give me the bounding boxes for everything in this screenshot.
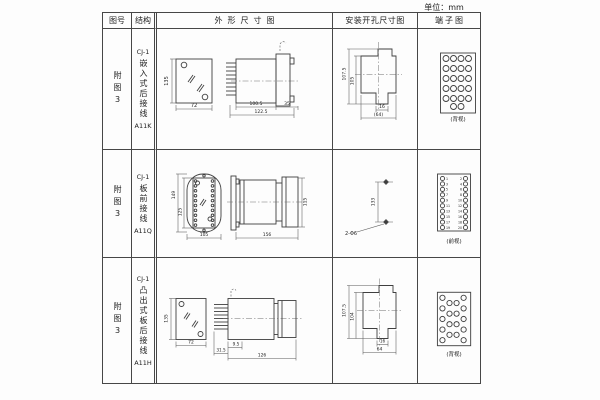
structure-cell-a11h: CJ-1 凸出式板后接线 A11H <box>132 258 157 383</box>
terminal-diagram-a11q: 1357911131517192468101214161820 (前视) <box>418 150 480 257</box>
fig-no-label: 附图3 <box>113 71 121 108</box>
terminal-cell-a11h: (背视) <box>418 258 480 383</box>
dim-flange: 35 <box>284 101 290 107</box>
pins <box>226 63 236 95</box>
dim-depth-total: 122.5 <box>255 109 268 115</box>
terminal-number: 20 <box>458 226 462 230</box>
structure-cell-a11k: CJ-1 嵌入式后接线 A11K <box>132 29 157 150</box>
dim-inner-height: 125 <box>178 208 184 217</box>
dim-notch: 16 <box>380 339 386 344</box>
unit-label-text: 单位：mm <box>424 3 464 12</box>
header-outline: 外形尺寸图 <box>157 13 333 29</box>
dim-cutout-outer: 107.5 <box>342 67 348 80</box>
dim-depth: 156 <box>263 232 272 238</box>
terminal-number: 8 <box>460 193 462 197</box>
dim-inset: 9.5 <box>233 342 240 347</box>
dim-front-width: 105 <box>200 232 209 238</box>
header-fig-no-text: 图号 <box>109 15 125 26</box>
terminal-number: 10 <box>458 199 462 203</box>
terminal-number: 4 <box>460 182 462 186</box>
terminal-number: 11 <box>446 204 450 208</box>
terminal-caption: (背视) <box>450 115 465 123</box>
mounting-holes <box>383 179 389 225</box>
outline-cell-a11k: 135 72 100.5 <box>157 29 333 150</box>
structure-label: 板前接线 <box>139 184 147 224</box>
terminal-cell-a11q: 1357911131517192468101214161820 (前视) <box>418 150 480 258</box>
outline-cell-a11h: 135 72 9.5 <box>157 258 333 383</box>
dim-cutout-inner: 105 <box>350 77 356 86</box>
outline-diagram-a11q: 149 125 105 156 115 <box>157 150 332 257</box>
model-label: CJ-1 <box>137 173 150 181</box>
terminal-number: 6 <box>460 188 462 192</box>
terminal-number: 13 <box>446 210 450 214</box>
outline-diagram-a11h: 135 72 9.5 <box>157 258 332 383</box>
dim-front-width: 72 <box>188 340 194 346</box>
dim-cutout-width: 64 <box>377 347 383 353</box>
mounting-cell-a11k: 107.5 105 16 (64) <box>333 29 418 150</box>
header-structure-text: 结构 <box>135 15 151 26</box>
terminal-number: 1 <box>446 177 448 181</box>
terminal-number: 12 <box>458 204 462 208</box>
terminal-caption: (前视) <box>446 237 461 245</box>
terminal-number: 9 <box>446 199 448 203</box>
dim-pin-depth: 31.5 <box>216 348 226 353</box>
terminal-number: 17 <box>446 220 450 224</box>
header-mounting-text: 安装开孔尺寸图 <box>345 15 405 26</box>
dim-front-height: 135 <box>164 76 170 86</box>
terminal-number: 2 <box>460 177 462 181</box>
structure-label: 凸出式板后接线 <box>139 286 147 356</box>
dim-front-height: 149 <box>171 191 177 200</box>
mounting-diagram-a11k: 107.5 105 16 (64) <box>333 29 417 149</box>
header-terminal-text: 端子图 <box>433 15 465 26</box>
code-label: A11Q <box>134 227 152 235</box>
pins <box>214 305 228 330</box>
fig-no-label: 附图3 <box>113 185 121 222</box>
terminal-number: 18 <box>458 220 462 224</box>
terminal-grid-rear <box>440 295 466 343</box>
dim-depth-body: 100.5 <box>250 101 263 107</box>
header-structure: 结构 <box>132 13 157 29</box>
model-label: CJ-1 <box>137 48 150 56</box>
terminal-caption: (背视) <box>446 350 461 358</box>
dim-cap-height: 115 <box>303 198 309 207</box>
mounting-diagram-a11h: 107.5 104 16 64 <box>333 258 417 383</box>
model-label: CJ-1 <box>137 275 150 283</box>
terminal-number: 3 <box>446 182 448 186</box>
dim-cutout-width: (64) <box>374 112 383 118</box>
mounting-cell-a11q: 133 2-Φ6 <box>333 150 418 258</box>
header-fig-no: 图号 <box>103 13 132 29</box>
terminal-number: 14 <box>458 210 462 214</box>
terminal-grid-rear <box>443 56 472 110</box>
dim-notch: 16 <box>379 104 385 110</box>
dim-depth: 126 <box>258 353 267 359</box>
dim-front-height: 135 <box>164 314 170 323</box>
datasheet-page: 单位：mm 图号 结构 外形尺寸图 安装开孔尺寸图 端子图 附图3 CJ-1 嵌… <box>0 0 600 400</box>
fig-no-cell-a11h: 附图3 <box>103 258 132 383</box>
header-mounting: 安装开孔尺寸图 <box>333 13 418 29</box>
code-label: A11H <box>134 359 152 367</box>
dim-cutout-outer: 107.5 <box>342 304 348 317</box>
code-label: A11K <box>135 122 152 130</box>
terminal-grid-front: 1357911131517192468101214161820 <box>440 176 467 229</box>
structure-label: 嵌入式后接线 <box>139 59 147 119</box>
mounting-diagram-a11q: 133 2-Φ6 <box>333 150 417 257</box>
hole-spec-label: 2-Φ6 <box>345 231 357 237</box>
terminal-number: 16 <box>458 215 462 219</box>
dim-cutout-inner: 104 <box>350 312 356 321</box>
header-terminal: 端子图 <box>418 13 480 29</box>
mounting-cell-a11h: 107.5 104 16 64 <box>333 258 418 383</box>
spec-table: 图号 结构 外形尺寸图 安装开孔尺寸图 端子图 附图3 CJ-1 嵌入式后接线 … <box>102 12 481 384</box>
header-outline-text: 外形尺寸图 <box>210 15 280 26</box>
dim-hole-spacing: 133 <box>371 198 377 207</box>
fig-no-cell-a11k: 附图3 <box>103 29 132 150</box>
outline-diagram-a11k: 135 72 100.5 <box>157 29 332 149</box>
dim-front-width: 72 <box>191 103 197 109</box>
terminal-number: 5 <box>446 188 448 192</box>
fig-no-cell-a11q: 附图3 <box>103 150 132 258</box>
terminal-diagram-a11h: (背视) <box>418 258 480 383</box>
terminal-number: 7 <box>446 193 448 197</box>
terminal-cell-a11k: (背视) <box>418 29 480 150</box>
terminal-number: 19 <box>446 226 450 230</box>
structure-cell-a11q: CJ-1 板前接线 A11Q <box>132 150 157 258</box>
fig-no-label: 附图3 <box>113 302 121 339</box>
outline-cell-a11q: 149 125 105 156 115 <box>157 150 333 258</box>
terminal-number: 15 <box>446 215 450 219</box>
terminal-diagram-a11k: (背视) <box>418 29 480 149</box>
